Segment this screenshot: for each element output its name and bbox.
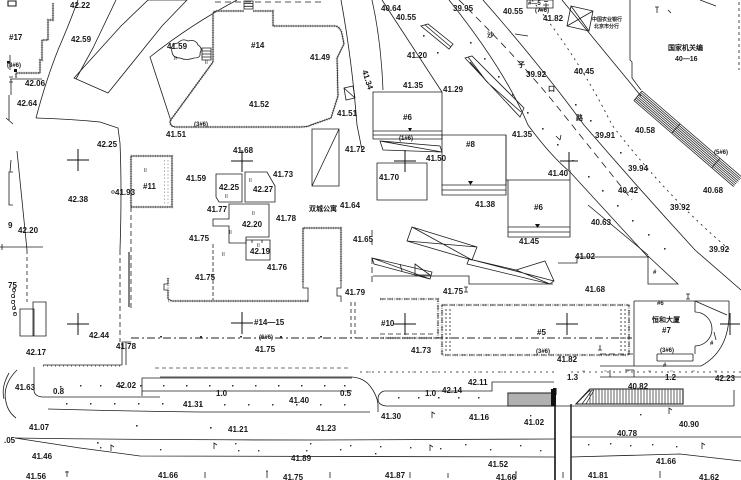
svg-text:39.94: 39.94 (628, 164, 649, 173)
svg-text:41.64: 41.64 (340, 201, 361, 210)
svg-text:41.50: 41.50 (426, 154, 447, 163)
svg-text:41.59: 41.59 (167, 42, 188, 51)
svg-text:41.52: 41.52 (488, 460, 509, 469)
svg-text:75: 75 (8, 281, 17, 290)
svg-text:39.92: 39.92 (709, 245, 730, 254)
svg-text:41.62: 41.62 (699, 473, 720, 480)
svg-text:II: II (222, 252, 225, 258)
svg-text:41.66: 41.66 (158, 471, 179, 480)
svg-text:(3#6): (3#6) (536, 349, 550, 355)
svg-text:42.44: 42.44 (89, 331, 110, 340)
svg-text:42.64: 42.64 (17, 99, 38, 108)
svg-text:(5#6): (5#6) (714, 150, 728, 156)
svg-text:42.25: 42.25 (219, 183, 240, 192)
svg-text:41.82: 41.82 (543, 14, 564, 23)
svg-text:II: II (229, 230, 232, 236)
svg-text:41.78: 41.78 (116, 342, 137, 351)
svg-text:41.66: 41.66 (496, 473, 517, 480)
svg-text:41.87: 41.87 (385, 471, 406, 480)
svg-text:41.70: 41.70 (379, 173, 400, 182)
svg-text:41.45: 41.45 (519, 237, 540, 246)
svg-text:#7: #7 (662, 326, 671, 335)
svg-text:41.40: 41.40 (289, 396, 310, 405)
svg-text:41.77: 41.77 (207, 205, 228, 214)
svg-text:双城公寓: 双城公寓 (309, 204, 337, 213)
svg-text:41.40: 41.40 (548, 169, 569, 178)
svg-text:41.65: 41.65 (353, 235, 374, 244)
svg-text:42.20: 42.20 (18, 226, 39, 235)
svg-text:39.92: 39.92 (670, 203, 691, 212)
svg-text:41.75: 41.75 (189, 234, 210, 243)
svg-text:中国农业银行: 中国农业银行 (592, 16, 622, 23)
svg-text:0.5: 0.5 (340, 389, 352, 398)
svg-text:40.63: 40.63 (591, 218, 612, 227)
svg-text:北京市分行: 北京市分行 (594, 23, 619, 30)
svg-text:41.75: 41.75 (255, 345, 276, 354)
svg-text:(3#6): (3#6) (660, 348, 674, 354)
svg-text:II: II (174, 56, 177, 62)
svg-text:42.59: 42.59 (71, 35, 92, 44)
svg-text:子: 子 (518, 61, 525, 69)
svg-text:41.29: 41.29 (443, 85, 464, 94)
svg-text:口: 口 (548, 85, 555, 93)
svg-text:9: 9 (8, 221, 13, 230)
svg-text:1.0: 1.0 (425, 389, 437, 398)
svg-text:#5: #5 (537, 328, 546, 337)
svg-text:40.82: 40.82 (628, 382, 649, 391)
svg-text:1.3: 1.3 (567, 373, 579, 382)
svg-text:42.06: 42.06 (25, 79, 46, 88)
svg-text:42.14: 42.14 (442, 386, 463, 395)
svg-text:国家机关编: 国家机关编 (668, 43, 703, 52)
svg-text:41.78: 41.78 (276, 214, 297, 223)
svg-text:41.49: 41.49 (310, 53, 331, 62)
svg-text:沙: 沙 (487, 31, 494, 39)
svg-text:41.20: 41.20 (407, 51, 428, 60)
svg-text:40.90: 40.90 (679, 420, 700, 429)
svg-text:40.55: 40.55 (396, 13, 417, 22)
svg-text:II: II (249, 178, 252, 184)
svg-text:41.31: 41.31 (183, 400, 204, 409)
svg-text:39.95: 39.95 (453, 4, 474, 13)
svg-text:40.68: 40.68 (703, 186, 724, 195)
svg-text:41.68: 41.68 (585, 285, 606, 294)
svg-text:#—5: #—5 (528, 1, 541, 7)
svg-text:42.20: 42.20 (242, 220, 263, 229)
svg-text:路: 路 (576, 113, 584, 122)
svg-text:41.73: 41.73 (273, 170, 294, 179)
svg-text:40.42: 40.42 (618, 186, 639, 195)
svg-text:41.56: 41.56 (26, 472, 47, 480)
svg-text:#17: #17 (9, 33, 23, 42)
svg-text:41.16: 41.16 (469, 413, 490, 422)
svg-text:(6#6): (6#6) (259, 335, 273, 341)
svg-text:.05: .05 (4, 436, 16, 445)
svg-text:41.81: 41.81 (588, 471, 609, 480)
svg-text:#6: #6 (657, 301, 664, 307)
svg-text:41.35: 41.35 (403, 81, 424, 90)
svg-text:41.75: 41.75 (283, 473, 304, 480)
svg-text:41.21: 41.21 (228, 425, 249, 434)
svg-text:42.23: 42.23 (715, 374, 736, 383)
svg-text:II: II (252, 211, 255, 217)
svg-text:#8: #8 (466, 140, 475, 149)
svg-text:42.38: 42.38 (68, 195, 89, 204)
svg-text:#6: #6 (534, 203, 543, 212)
svg-text:42.02: 42.02 (116, 381, 137, 390)
svg-text:41.51: 41.51 (337, 109, 358, 118)
svg-text:II: II (225, 194, 228, 200)
svg-text:#14: #14 (251, 41, 265, 50)
svg-text:41.30: 41.30 (381, 412, 402, 421)
svg-text:1.0: 1.0 (216, 389, 228, 398)
svg-text:(1#6): (1#6) (399, 136, 413, 142)
svg-text:#10: #10 (381, 319, 395, 328)
svg-text:41.63: 41.63 (15, 383, 36, 392)
svg-text:41.02: 41.02 (524, 418, 545, 427)
svg-text:II: II (257, 243, 260, 249)
svg-text:42.19: 42.19 (250, 247, 271, 256)
svg-text:#11: #11 (143, 182, 156, 191)
svg-text:40.55: 40.55 (503, 7, 524, 16)
svg-text:0.8: 0.8 (53, 387, 65, 396)
svg-text:40.78: 40.78 (617, 429, 638, 438)
svg-text:41.73: 41.73 (411, 346, 432, 355)
svg-text:41.51: 41.51 (166, 130, 187, 139)
svg-text:II: II (205, 60, 208, 66)
svg-text:40.64: 40.64 (381, 4, 402, 13)
svg-text:41.89: 41.89 (291, 454, 312, 463)
svg-text:39.92: 39.92 (526, 70, 547, 79)
svg-text:39.91: 39.91 (595, 131, 616, 140)
svg-text:42.11: 42.11 (468, 378, 488, 387)
svg-text:41.79: 41.79 (345, 288, 366, 297)
svg-text:II: II (144, 168, 147, 174)
svg-text:41.66: 41.66 (656, 457, 677, 466)
svg-text:42.22: 42.22 (70, 1, 91, 10)
svg-text:41.52: 41.52 (249, 100, 270, 109)
svg-text:(8#6): (8#6) (7, 63, 21, 69)
svg-text:41.93: 41.93 (115, 188, 136, 197)
svg-text:(7#6): (7#6) (535, 8, 549, 14)
svg-text:#14—15: #14—15 (254, 318, 285, 327)
svg-text:41.23: 41.23 (316, 424, 337, 433)
svg-text:40—16: 40—16 (675, 56, 698, 63)
svg-text:41.75: 41.75 (195, 273, 216, 282)
svg-text:42.25: 42.25 (97, 140, 118, 149)
svg-text:40.45: 40.45 (574, 67, 595, 76)
svg-text:41.68: 41.68 (233, 146, 254, 155)
svg-text:41.75: 41.75 (443, 287, 464, 296)
svg-text:41.59: 41.59 (186, 174, 207, 183)
svg-text:41.07: 41.07 (29, 423, 50, 432)
svg-text:41.38: 41.38 (475, 200, 496, 209)
svg-text:40.58: 40.58 (635, 126, 656, 135)
svg-text:41.46: 41.46 (32, 452, 53, 461)
svg-text:1.2: 1.2 (665, 373, 677, 382)
svg-text:42.27: 42.27 (253, 185, 274, 194)
svg-text:恒和大厦: 恒和大厦 (651, 315, 681, 324)
svg-text:41.72: 41.72 (345, 145, 366, 154)
svg-text:#6: #6 (403, 113, 412, 122)
svg-text:41.02: 41.02 (575, 252, 596, 261)
svg-text:(3#6): (3#6) (194, 122, 208, 128)
svg-text:41.76: 41.76 (267, 263, 288, 272)
svg-text:41.82: 41.82 (557, 355, 578, 364)
svg-text:41.35: 41.35 (512, 130, 533, 139)
svg-text:42.17: 42.17 (26, 348, 47, 357)
